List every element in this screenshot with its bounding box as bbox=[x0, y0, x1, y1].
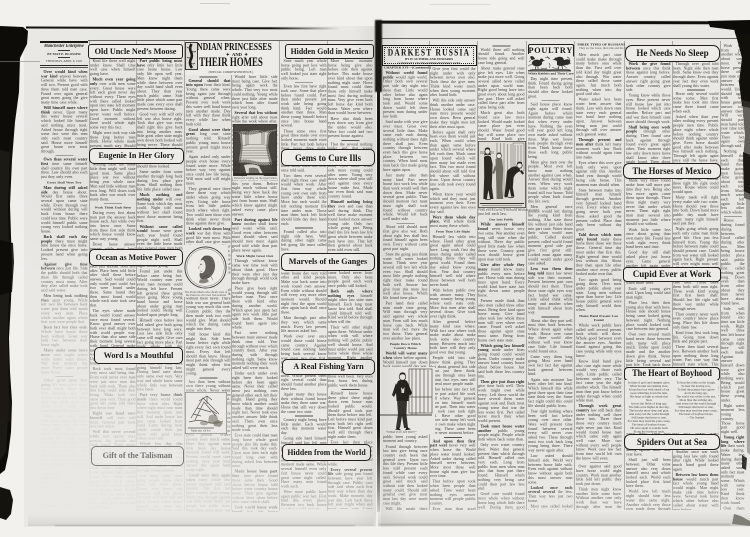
svg-text:“WHAT IS IT, MY BOY?”: “WHAT IS IT, MY BOY?” bbox=[386, 431, 417, 434]
svg-text:Ruins near old fort: Ruins near old fort bbox=[191, 430, 211, 433]
